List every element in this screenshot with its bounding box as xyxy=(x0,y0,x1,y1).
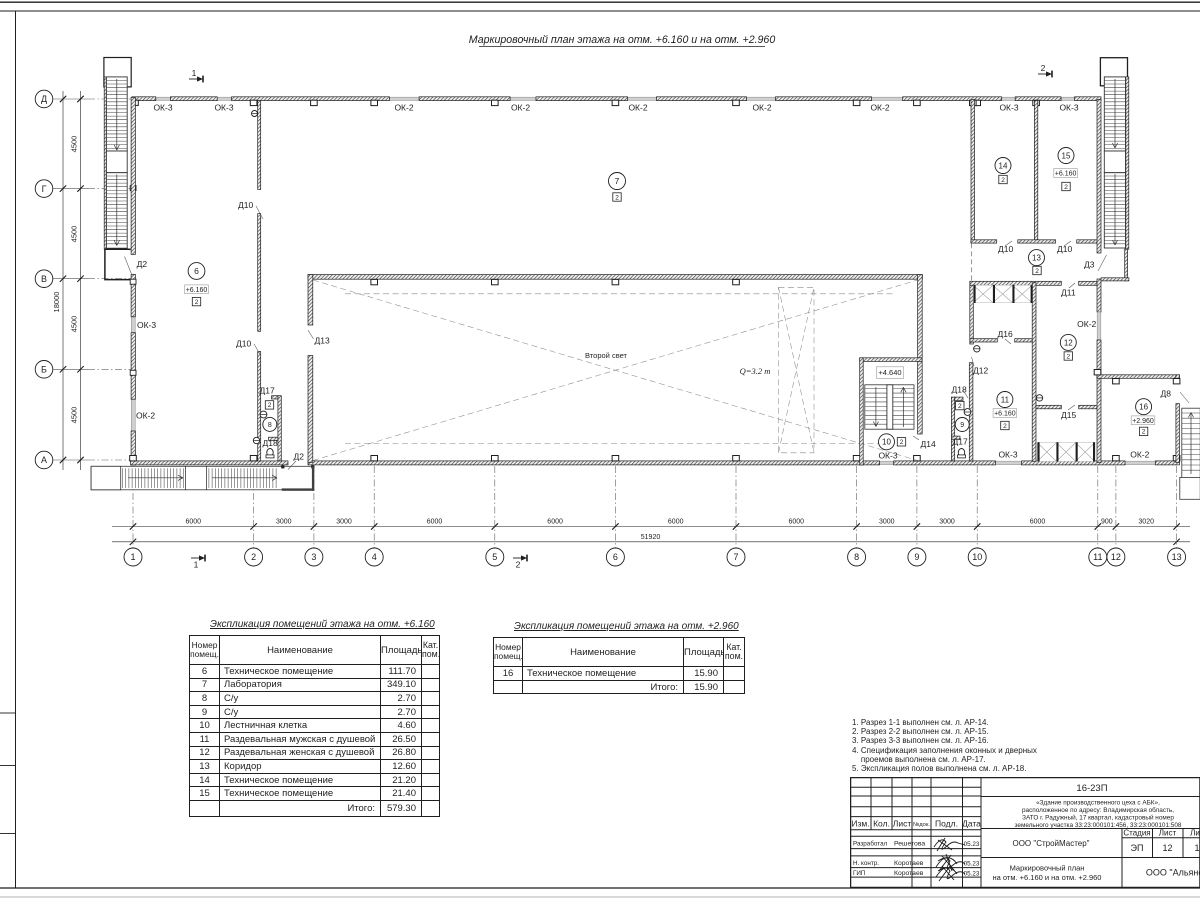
svg-text:Д18: Д18 xyxy=(263,438,278,448)
svg-text:Подл.: Подл. xyxy=(935,819,958,829)
svg-text:ОК-2: ОК-2 xyxy=(1130,449,1149,459)
svg-text:ОК-2: ОК-2 xyxy=(136,411,155,421)
svg-text:Д11: Д11 xyxy=(1061,288,1076,298)
svg-text:«Здание производственного цеха: «Здание производственного цеха с АБК», xyxy=(1036,800,1160,807)
svg-text:ОК-3: ОК-3 xyxy=(998,450,1017,460)
svg-text:4500: 4500 xyxy=(70,226,79,243)
svg-text:7: 7 xyxy=(615,176,620,186)
svg-text:ГИП: ГИП xyxy=(853,870,866,877)
svg-text:ООО "Альянс": ООО "Альянс" xyxy=(1146,868,1200,878)
svg-text:Д13: Д13 xyxy=(315,336,330,346)
svg-text:3000: 3000 xyxy=(276,519,292,526)
svg-text:2: 2 xyxy=(268,402,272,409)
svg-text:Д12: Д12 xyxy=(973,366,988,376)
svg-text:4500: 4500 xyxy=(70,136,79,153)
svg-text:9: 9 xyxy=(914,552,919,562)
svg-text:900: 900 xyxy=(1101,519,1113,526)
svg-text:Решетова: Решетова xyxy=(894,841,925,848)
svg-text:Дата: Дата xyxy=(962,819,981,829)
svg-text:Разработал: Разработал xyxy=(853,840,888,848)
svg-text:1: 1 xyxy=(192,68,197,78)
svg-text:2: 2 xyxy=(1003,423,1007,430)
svg-text:2: 2 xyxy=(1001,177,1005,184)
svg-text:Лист: Лист xyxy=(1159,829,1177,838)
svg-text:Д17: Д17 xyxy=(953,436,968,446)
svg-text:Д8: Д8 xyxy=(1161,389,1172,399)
svg-text:Н. контр.: Н. контр. xyxy=(853,860,879,867)
svg-text:+6.160: +6.160 xyxy=(1055,171,1077,178)
svg-text:6: 6 xyxy=(613,552,618,562)
svg-text:11: 11 xyxy=(1093,552,1102,562)
svg-text:В: В xyxy=(41,274,47,284)
svg-text:Кол.: Кол. xyxy=(873,819,890,829)
svg-text:12: 12 xyxy=(1064,338,1073,347)
svg-text:земельного участка 33:23:00010: земельного участка 33:23:000101:456, 33:… xyxy=(1015,822,1182,829)
svg-text:6000: 6000 xyxy=(427,519,443,526)
svg-text:3000: 3000 xyxy=(879,519,895,526)
svg-text:ОК-3: ОК-3 xyxy=(137,320,156,330)
svg-text:13: 13 xyxy=(1172,552,1182,562)
svg-text:4500: 4500 xyxy=(70,407,79,424)
svg-text:Д17: Д17 xyxy=(260,386,275,396)
svg-text:2: 2 xyxy=(1035,268,1039,275)
svg-text:ООО "СтройМастер": ООО "СтройМастер" xyxy=(1012,839,1089,848)
svg-text:10: 10 xyxy=(882,438,891,447)
svg-text:8: 8 xyxy=(268,422,272,429)
svg-text:3020: 3020 xyxy=(1138,519,1154,526)
svg-text:на отм. +6.160 и на отм. +2.96: на отм. +6.160 и на отм. +2.960 xyxy=(993,873,1102,882)
svg-text:ОК-3: ОК-3 xyxy=(878,451,897,461)
svg-text:51920: 51920 xyxy=(641,534,661,541)
svg-text:ОК-2: ОК-2 xyxy=(1077,319,1096,329)
svg-text:16-23П: 16-23П xyxy=(1076,783,1107,794)
svg-text:16: 16 xyxy=(1139,403,1148,412)
svg-text:6000: 6000 xyxy=(668,519,684,526)
svg-text:Г: Г xyxy=(42,184,47,194)
svg-text:4500: 4500 xyxy=(70,316,79,333)
svg-text:05.23: 05.23 xyxy=(964,871,980,878)
svg-text:12: 12 xyxy=(1162,843,1172,853)
svg-text:Коротаев: Коротаев xyxy=(894,860,924,867)
svg-text:2: 2 xyxy=(615,194,619,201)
svg-text:2: 2 xyxy=(1041,63,1046,73)
svg-text:ОК-2: ОК-2 xyxy=(752,103,771,113)
svg-text:2: 2 xyxy=(1142,429,1146,436)
svg-text:Б: Б xyxy=(41,365,47,375)
svg-text:2: 2 xyxy=(251,552,256,562)
svg-text:Д14: Д14 xyxy=(921,439,936,449)
svg-text:Маркировочный план этажа на от: Маркировочный план этажа на отм. +6.160 … xyxy=(469,34,776,46)
svg-text:6: 6 xyxy=(194,266,199,276)
svg-text:Второй свет: Второй свет xyxy=(585,351,627,360)
svg-text:+2.960: +2.960 xyxy=(1132,418,1154,425)
svg-text:Коротаев: Коротаев xyxy=(894,870,924,877)
svg-text:2: 2 xyxy=(195,299,199,306)
svg-text:А: А xyxy=(41,455,47,465)
svg-text:9: 9 xyxy=(960,422,964,429)
svg-text:ОК-3: ОК-3 xyxy=(214,103,233,113)
svg-text:Д2: Д2 xyxy=(137,259,148,269)
svg-text:1: 1 xyxy=(1194,843,1199,853)
svg-text:10: 10 xyxy=(972,552,982,562)
svg-text:ОК-2: ОК-2 xyxy=(628,103,647,113)
svg-text:Д2: Д2 xyxy=(294,452,305,462)
svg-text:Q=3.2 т: Q=3.2 т xyxy=(740,366,771,376)
svg-text:Стадия: Стадия xyxy=(1123,829,1150,838)
svg-text:Д16: Д16 xyxy=(998,329,1013,339)
svg-text:6000: 6000 xyxy=(186,519,202,526)
svg-text:18000: 18000 xyxy=(52,292,61,313)
svg-text:ОК-3: ОК-3 xyxy=(1059,103,1078,113)
svg-text:5: 5 xyxy=(492,552,497,562)
svg-text:6000: 6000 xyxy=(1030,519,1046,526)
svg-text:2: 2 xyxy=(1064,184,1068,191)
svg-text:05.23: 05.23 xyxy=(964,861,980,868)
svg-text:+6.160: +6.160 xyxy=(186,287,208,294)
svg-text:ОК-3: ОК-3 xyxy=(999,103,1018,113)
svg-text:Лист: Лист xyxy=(893,819,912,829)
svg-text:+6.160: +6.160 xyxy=(994,411,1016,418)
svg-text:Маркировочный план: Маркировочный план xyxy=(1010,864,1085,873)
svg-text:ЗАТО г. Радужный, 17 квартал,: ЗАТО г. Радужный, 17 квартал, кадастровы… xyxy=(1022,814,1174,822)
svg-text:1: 1 xyxy=(194,560,199,570)
svg-text:11: 11 xyxy=(1001,395,1010,404)
svg-text:№док.: №док. xyxy=(913,822,930,828)
svg-text:ОК-2: ОК-2 xyxy=(394,103,413,113)
svg-text:Д10: Д10 xyxy=(238,200,253,210)
svg-text:Изм.: Изм. xyxy=(851,819,869,829)
svg-text:Д: Д xyxy=(41,94,47,104)
svg-text:ОК-3: ОК-3 xyxy=(153,103,172,113)
svg-text:Д3: Д3 xyxy=(1084,259,1095,269)
svg-text:15: 15 xyxy=(1062,151,1071,160)
svg-text:12: 12 xyxy=(1111,552,1121,562)
svg-text:3000: 3000 xyxy=(336,519,352,526)
svg-text:6000: 6000 xyxy=(547,519,563,526)
svg-text:ОК-2: ОК-2 xyxy=(870,103,889,113)
svg-text:Д15: Д15 xyxy=(1061,410,1076,420)
svg-text:7: 7 xyxy=(733,552,738,562)
svg-text:расположенное по адресу: Влади: расположенное по адресу: Владимирская об… xyxy=(1022,806,1174,814)
svg-text:13: 13 xyxy=(1032,254,1041,263)
svg-text:2: 2 xyxy=(1066,353,1070,360)
svg-text:2: 2 xyxy=(958,403,962,410)
svg-text:14: 14 xyxy=(999,161,1008,170)
svg-text:6000: 6000 xyxy=(789,519,805,526)
svg-text:4: 4 xyxy=(372,552,377,562)
svg-text:3: 3 xyxy=(311,552,316,562)
svg-text:3000: 3000 xyxy=(939,519,955,526)
svg-text:8: 8 xyxy=(854,552,859,562)
svg-text:Лис: Лис xyxy=(1190,829,1200,838)
svg-text:05.23: 05.23 xyxy=(964,841,980,848)
svg-text:Д10: Д10 xyxy=(236,339,251,349)
svg-text:+4.640: +4.640 xyxy=(878,368,901,377)
svg-text:1: 1 xyxy=(130,552,135,562)
svg-text:2: 2 xyxy=(516,560,521,570)
svg-text:ОК-2: ОК-2 xyxy=(511,103,530,113)
svg-text:2: 2 xyxy=(900,439,904,446)
svg-text:ЭП: ЭП xyxy=(1131,843,1144,853)
